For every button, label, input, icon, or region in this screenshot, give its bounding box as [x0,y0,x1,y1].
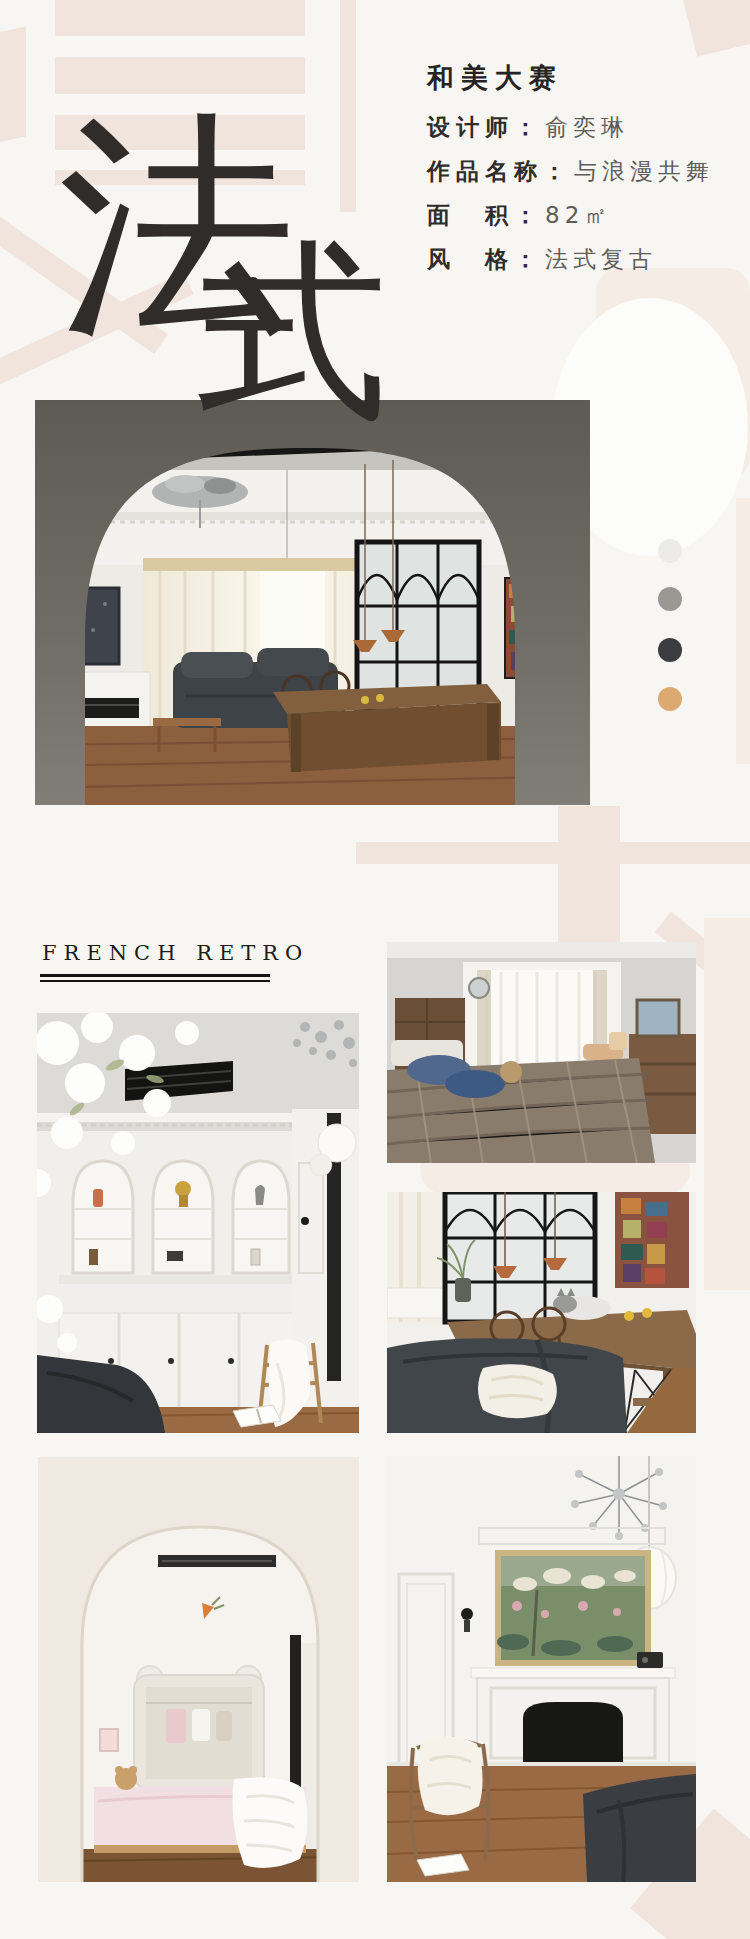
photo-living-room-arch [35,400,590,805]
area-label: 面 积： [427,202,543,228]
project-info: 和美大赛 设计师：俞奕琳 作品名称：与浪漫共舞 面 积：82㎡ 风 格：法式复古 [427,60,714,272]
photo-bedroom [387,942,696,1163]
photo-kids-room-arch [38,1457,359,1882]
designer-value: 俞奕琳 [545,114,629,140]
info-row-project-name: 作品名称：与浪漫共舞 [427,158,714,184]
hero-character-shi: 式 [196,244,388,421]
info-row-area: 面 积：82㎡ [427,202,714,228]
palette-swatch-tan-gold [658,687,682,711]
watermark-glyph-hbar [356,842,750,864]
competition-title: 和美大赛 [427,60,714,96]
palette-swatch-warm-gray [658,587,682,611]
style-label: 风 格： [427,246,543,272]
project-name-label: 作品名称： [427,158,572,184]
palette-swatch-off-white [658,539,682,563]
designer-label: 设计师： [427,114,543,140]
style-value: 法式复古 [545,246,657,272]
poster-page: 和美大赛 设计师：俞奕琳 作品名称：与浪漫共舞 面 积：82㎡ 风 格：法式复古… [0,0,750,1939]
photo-dining-black-sofa [387,1192,696,1433]
watermark-wedge [0,26,26,143]
watermark-corner-bar [683,0,750,57]
info-row-style: 风 格：法式复古 [427,246,714,272]
area-value: 82㎡ [545,202,612,228]
watermark-right-strip [704,918,750,1290]
photo-arched-shelves [37,1013,359,1433]
section-title-french-retro: FRENCH RETRO [42,941,309,965]
info-row-designer: 设计师：俞奕琳 [427,114,714,140]
palette-swatch-charcoal [658,638,682,662]
watermark-vertical-bar [340,0,356,212]
watermark-stripe [55,36,305,57]
photo-living-room-fireplace [387,1456,696,1882]
section-title-underline [40,974,270,982]
project-name-value: 与浪漫共舞 [574,158,714,184]
watermark-right-strip [736,498,750,764]
